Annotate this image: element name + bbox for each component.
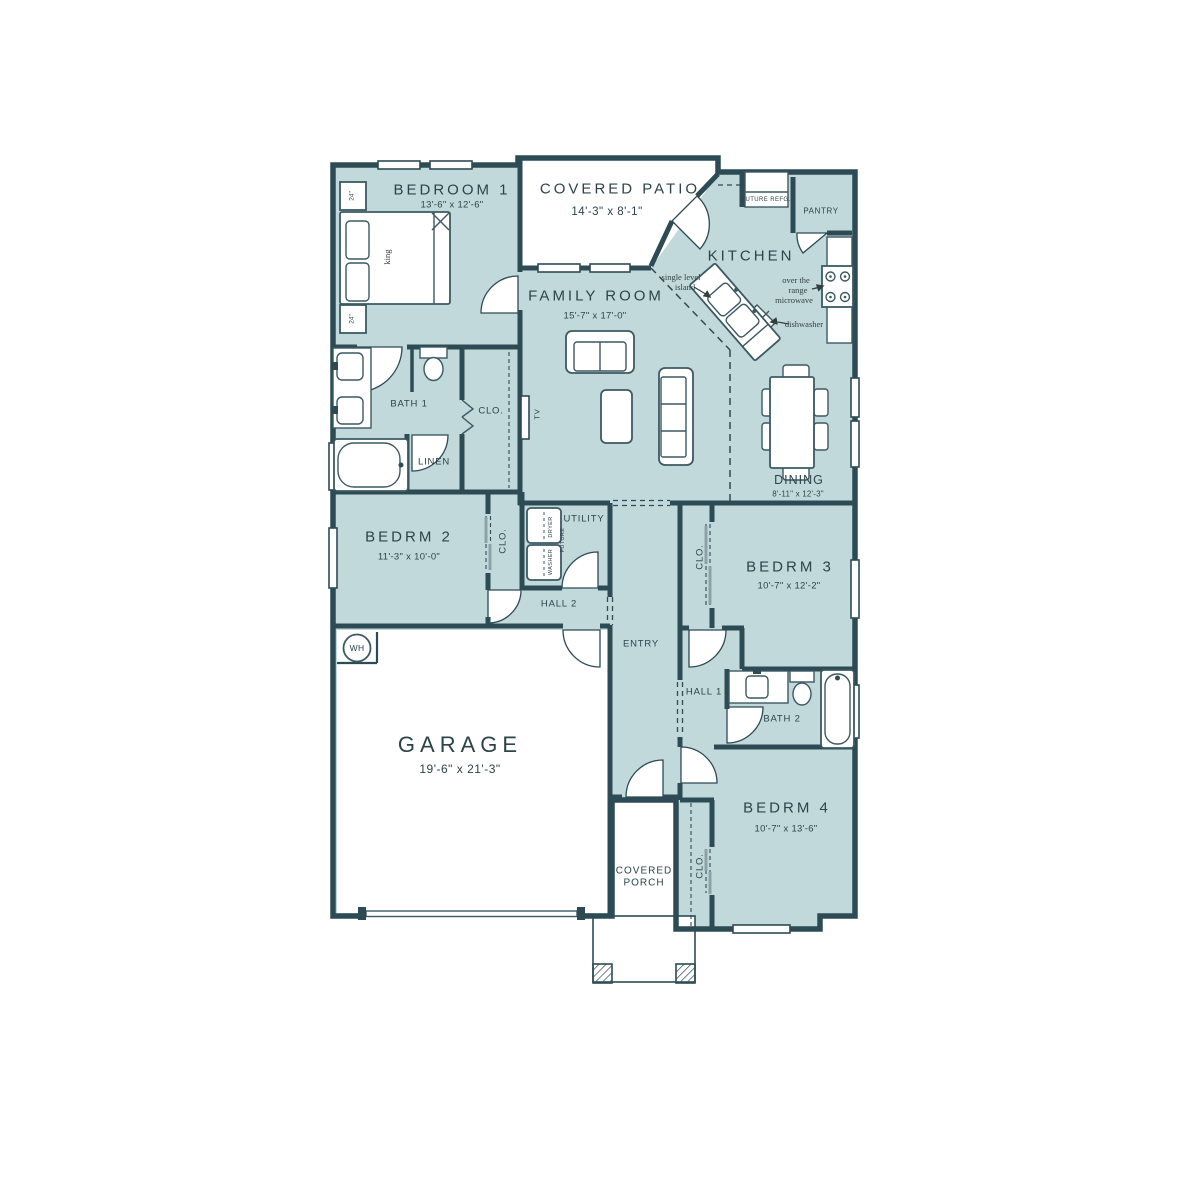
future-refrigerator — [745, 172, 788, 207]
sink-icon — [337, 397, 363, 424]
toilet-icon — [790, 671, 814, 682]
window-icon — [590, 264, 630, 272]
nightstand-icon — [340, 305, 366, 333]
porch-column-icon — [593, 964, 612, 983]
covered-porch — [593, 916, 695, 983]
floor-plan: BEDROOM 113'-6" x 12'-6"COVERED PATIO14'… — [0, 0, 1200, 1200]
window-icon — [538, 264, 580, 272]
window-icon — [378, 161, 420, 169]
chair-icon — [814, 423, 828, 450]
sink-icon — [337, 353, 363, 380]
sink-icon — [746, 676, 768, 698]
porch-column-icon — [676, 964, 695, 983]
window-icon — [851, 421, 859, 467]
water-heater-icon — [344, 635, 371, 662]
toilet-icon — [420, 347, 447, 358]
window-icon — [733, 925, 790, 933]
window-icon — [851, 378, 859, 417]
window-icon — [851, 560, 859, 618]
nightstand-icon — [340, 182, 366, 210]
dining-table — [770, 377, 814, 468]
chair-icon — [814, 389, 828, 416]
armchair-icon — [601, 390, 632, 443]
window-icon — [329, 528, 337, 588]
garage-area — [337, 630, 608, 913]
window-icon — [430, 161, 472, 169]
tv-icon — [521, 396, 529, 439]
bed-king — [340, 212, 450, 304]
floor-plan-drawing — [0, 0, 1200, 1200]
